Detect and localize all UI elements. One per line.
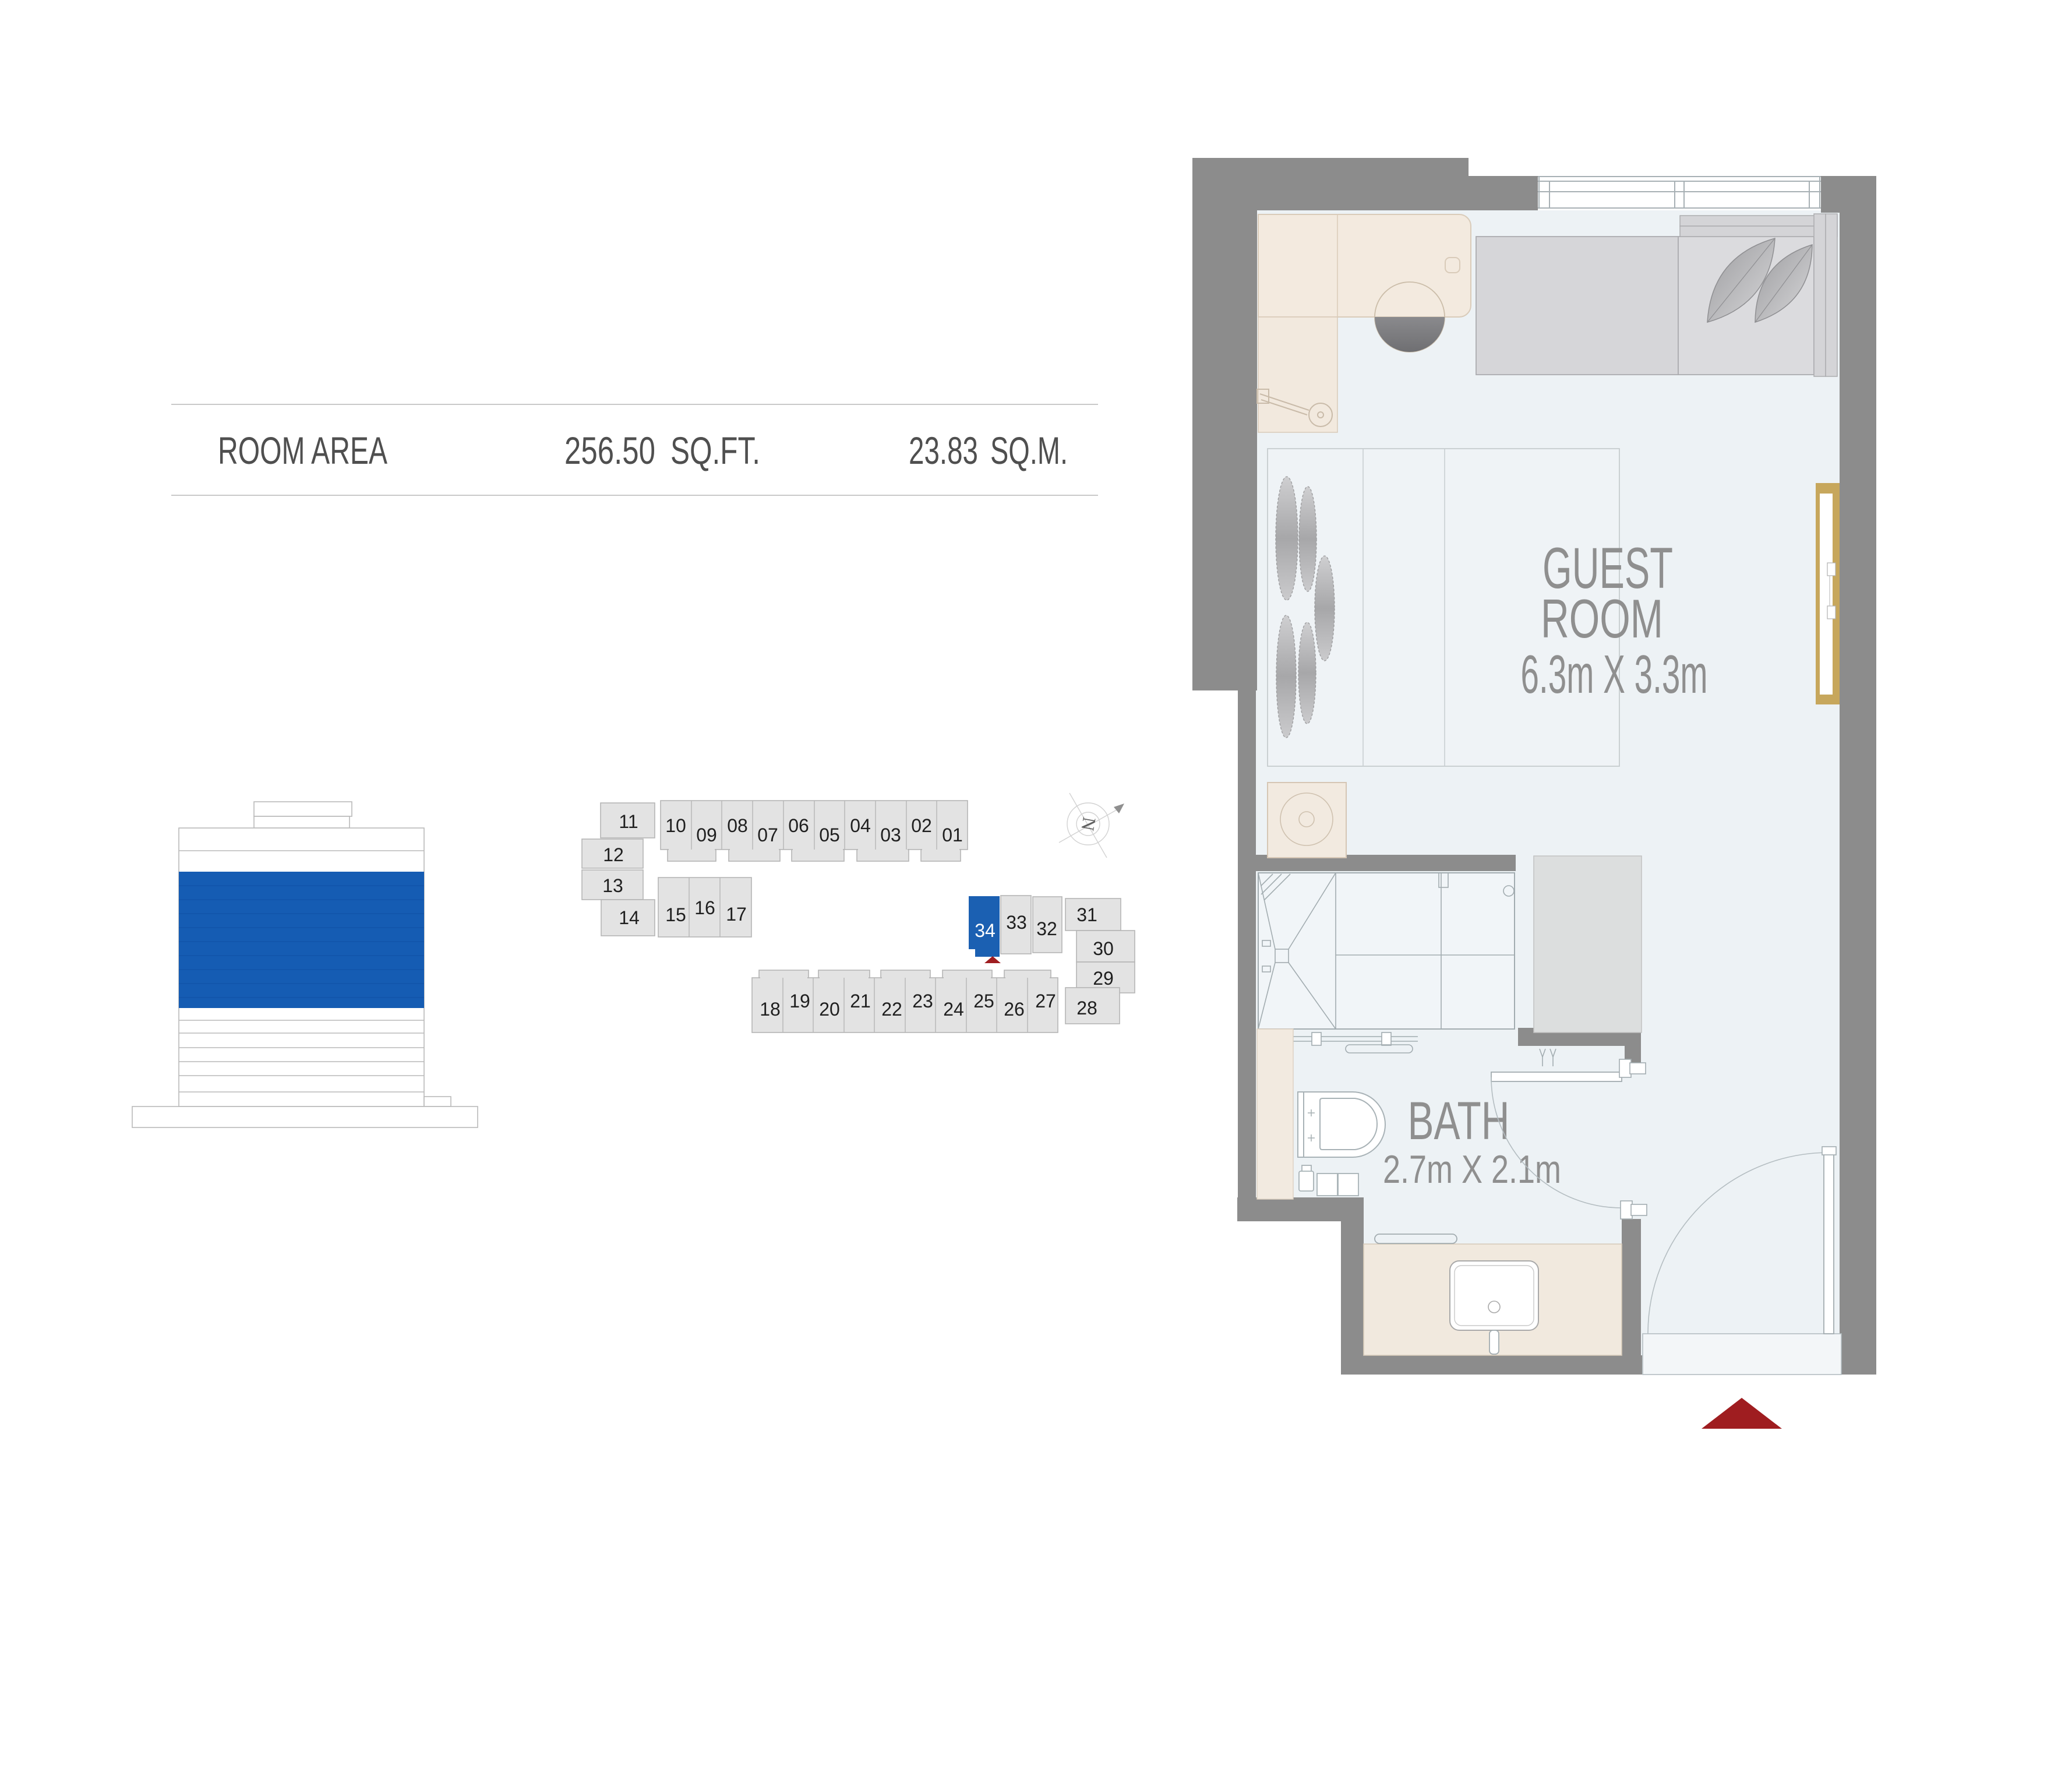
svg-text:34: 34 [975, 920, 996, 941]
svg-text:02: 02 [911, 815, 932, 836]
svg-text:19: 19 [789, 991, 810, 1012]
svg-text:14: 14 [619, 907, 640, 928]
svg-text:30: 30 [1093, 938, 1114, 959]
svg-text:SQ.M.: SQ.M. [990, 429, 1068, 472]
svg-text:17: 17 [726, 904, 747, 925]
svg-text:BATH: BATH [1408, 1091, 1510, 1151]
svg-text:09: 09 [696, 824, 717, 845]
svg-text:01: 01 [942, 824, 963, 845]
svg-text:29: 29 [1093, 968, 1114, 989]
svg-text:16: 16 [694, 897, 715, 918]
svg-text:25: 25 [973, 991, 994, 1012]
svg-text:08: 08 [727, 815, 748, 836]
svg-text:05: 05 [819, 824, 840, 845]
svg-text:13: 13 [602, 875, 623, 896]
svg-text:06: 06 [788, 815, 809, 836]
svg-text:256.50: 256.50 [564, 429, 655, 472]
svg-text:07: 07 [757, 824, 778, 845]
svg-text:20: 20 [819, 999, 840, 1020]
svg-text:03: 03 [880, 824, 901, 845]
svg-text:27: 27 [1035, 991, 1056, 1012]
svg-text:ROOM AREA: ROOM AREA [218, 429, 387, 472]
svg-text:11: 11 [619, 811, 638, 832]
svg-text:6.3m X 3.3m: 6.3m X 3.3m [1521, 644, 1708, 704]
svg-text:28: 28 [1076, 998, 1097, 1019]
svg-text:21: 21 [850, 991, 871, 1012]
svg-text:18: 18 [760, 999, 781, 1020]
svg-text:31: 31 [1076, 904, 1097, 925]
svg-text:32: 32 [1036, 918, 1057, 939]
svg-text:ROOM: ROOM [1541, 588, 1663, 649]
svg-text:15: 15 [665, 904, 686, 925]
svg-text:2.7m X 2.1m: 2.7m X 2.1m [1383, 1147, 1561, 1192]
svg-text:33: 33 [1006, 912, 1027, 933]
svg-text:23: 23 [912, 991, 933, 1012]
svg-text:22: 22 [881, 999, 902, 1020]
svg-text:12: 12 [603, 844, 624, 865]
svg-text:26: 26 [1004, 999, 1025, 1020]
svg-text:SQ.FT.: SQ.FT. [670, 429, 760, 472]
svg-text:10: 10 [665, 815, 686, 836]
svg-text:24: 24 [943, 999, 964, 1020]
svg-text:23.83: 23.83 [909, 429, 978, 472]
svg-text:04: 04 [850, 815, 871, 836]
